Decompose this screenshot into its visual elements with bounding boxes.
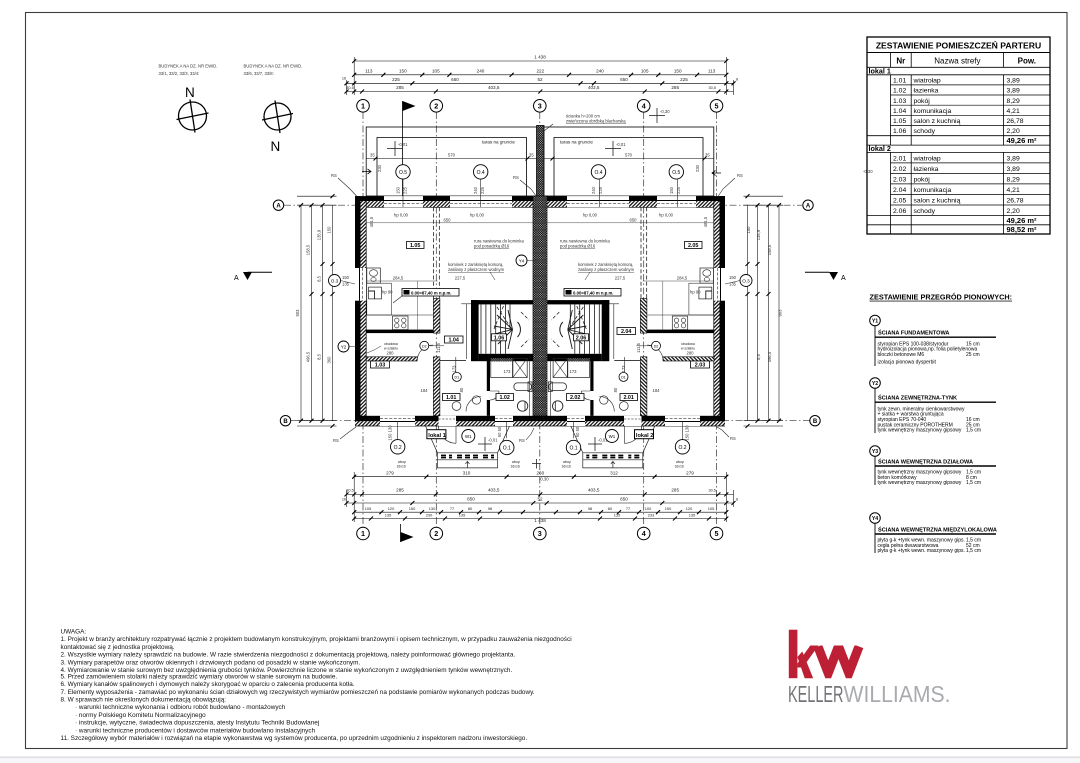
svg-text:8: 8 bbox=[736, 498, 738, 502]
svg-text:kontaktować się z jednostka pr: kontaktować się z jednostka projektową. bbox=[61, 644, 175, 651]
svg-text:279: 279 bbox=[386, 471, 394, 476]
svg-text:240: 240 bbox=[473, 186, 478, 194]
svg-text:2: 2 bbox=[434, 529, 438, 538]
svg-text:650: 650 bbox=[451, 77, 459, 82]
svg-text:tynk wewnętrzny maszynowy gips: tynk wewnętrzny maszynowy gipsowy bbox=[878, 480, 962, 486]
svg-text:173: 173 bbox=[504, 369, 512, 374]
svg-text:150: 150 bbox=[399, 68, 407, 73]
svg-text:158,5: 158,5 bbox=[306, 244, 311, 255]
svg-text:135: 135 bbox=[385, 513, 392, 518]
svg-text:135,9: 135,9 bbox=[756, 229, 761, 240]
svg-text:2. Wszystkie wymiary należy sp: 2. Wszystkie wymiary należy sprawdzić na… bbox=[61, 652, 516, 659]
svg-text:ŚCIANA ZEWNĘTRZNA-TYNK: ŚCIANA ZEWNĘTRZNA-TYNK bbox=[878, 395, 957, 402]
svg-text:pokój: pokój bbox=[914, 98, 931, 105]
svg-text:2.01: 2.01 bbox=[893, 155, 906, 162]
svg-text:225: 225 bbox=[403, 186, 408, 194]
svg-text:135,9: 135,9 bbox=[317, 229, 322, 240]
svg-text:obudowa: obudowa bbox=[681, 342, 695, 346]
svg-text:98,52 m²: 98,52 m² bbox=[1007, 225, 1038, 234]
svg-text:284,5: 284,5 bbox=[393, 276, 404, 281]
svg-text:1 438: 1 438 bbox=[534, 55, 546, 60]
svg-text:52: 52 bbox=[537, 497, 543, 502]
svg-text:111,5: 111,5 bbox=[636, 342, 641, 353]
svg-text:A: A bbox=[234, 275, 239, 282]
svg-text:pokój: pokój bbox=[914, 176, 931, 183]
svg-text:240: 240 bbox=[477, 68, 485, 73]
svg-text:8,5: 8,5 bbox=[317, 353, 322, 359]
svg-text:lokal 1: lokal 1 bbox=[869, 67, 891, 76]
svg-text:Y2: Y2 bbox=[341, 345, 347, 350]
svg-text:496,5: 496,5 bbox=[306, 351, 311, 362]
svg-text:4: 4 bbox=[642, 529, 646, 538]
svg-text:30,5: 30,5 bbox=[709, 489, 716, 493]
svg-text:135: 135 bbox=[459, 513, 466, 518]
svg-text:UWAGA:: UWAGA: bbox=[61, 629, 87, 636]
svg-text:80: 80 bbox=[613, 387, 618, 392]
svg-text:11. Szczegółowy wybór materiał: 11. Szczegółowy wybór materiałów i rozwi… bbox=[61, 735, 528, 742]
svg-text:RS: RS bbox=[331, 173, 337, 178]
svg-text:403,5: 403,5 bbox=[588, 85, 600, 90]
svg-text:1: 1 bbox=[361, 529, 365, 538]
svg-text:1,5 cm: 1,5 cm bbox=[966, 428, 981, 434]
svg-text:-0,01: -0,01 bbox=[616, 142, 626, 147]
svg-text:403,5: 403,5 bbox=[588, 488, 600, 493]
svg-text:260: 260 bbox=[536, 471, 544, 476]
svg-text:-0,01: -0,01 bbox=[398, 142, 408, 147]
svg-text:105: 105 bbox=[365, 506, 372, 511]
svg-text:225: 225 bbox=[676, 186, 681, 194]
svg-text:184: 184 bbox=[421, 388, 429, 393]
svg-text:173: 173 bbox=[452, 365, 457, 373]
svg-text:285: 285 bbox=[671, 488, 679, 493]
svg-text:50 50: 50 50 bbox=[575, 426, 580, 437]
svg-text:lokal 2: lokal 2 bbox=[636, 433, 653, 439]
svg-text:D2: D2 bbox=[422, 345, 427, 349]
svg-text:105: 105 bbox=[708, 506, 715, 511]
svg-text:8: 8 bbox=[736, 78, 738, 82]
svg-text:N: N bbox=[271, 139, 281, 154]
svg-text:285: 285 bbox=[396, 85, 404, 90]
svg-text:4: 4 bbox=[642, 101, 646, 110]
svg-text:1.03: 1.03 bbox=[375, 363, 386, 369]
svg-text:2.04: 2.04 bbox=[621, 329, 632, 335]
svg-text:150: 150 bbox=[409, 506, 416, 511]
svg-text:3,89: 3,89 bbox=[1007, 155, 1020, 162]
svg-text:113: 113 bbox=[365, 68, 373, 73]
svg-text:1.02: 1.02 bbox=[893, 88, 906, 95]
svg-text:· normy Polskiego Komitetu No: · normy Polskiego Komitetu Normalizacyjn… bbox=[75, 712, 206, 719]
svg-text:49,26 m²: 49,26 m² bbox=[1007, 136, 1038, 145]
svg-text:150: 150 bbox=[669, 186, 674, 194]
svg-text:hp 0,00: hp 0,00 bbox=[470, 213, 485, 218]
svg-text:16x16: 16x16 bbox=[562, 465, 571, 469]
svg-text:111,5: 111,5 bbox=[436, 342, 441, 353]
svg-text:· warunki techniczne wykonani: · warunki techniczne wykonania i odbioru… bbox=[75, 704, 286, 711]
svg-text:1.04: 1.04 bbox=[448, 338, 459, 344]
svg-text:1.01: 1.01 bbox=[446, 395, 457, 401]
svg-text:wiatrołap: wiatrołap bbox=[913, 78, 941, 85]
svg-text:1,5 cm: 1,5 cm bbox=[966, 480, 981, 486]
svg-text:O.5: O.5 bbox=[672, 170, 680, 176]
svg-text:hp 90: hp 90 bbox=[690, 290, 701, 295]
svg-text:-0,30: -0,30 bbox=[539, 477, 549, 482]
svg-text:35: 35 bbox=[529, 153, 534, 158]
svg-text:481,5: 481,5 bbox=[369, 216, 374, 227]
svg-text:150: 150 bbox=[674, 68, 682, 73]
svg-text:A: A bbox=[841, 275, 846, 282]
svg-text:158,5: 158,5 bbox=[767, 244, 772, 255]
svg-text:35: 35 bbox=[370, 153, 375, 158]
svg-text:schody: schody bbox=[914, 208, 936, 215]
svg-text:4,21: 4,21 bbox=[1007, 108, 1020, 115]
svg-text:16x16: 16x16 bbox=[511, 465, 520, 469]
svg-text:650: 650 bbox=[630, 217, 638, 222]
svg-text:16: 16 bbox=[342, 498, 346, 502]
svg-text:233: 233 bbox=[648, 513, 655, 518]
svg-text:0.00=87,40 m n.p.m.: 0.00=87,40 m n.p.m. bbox=[573, 290, 614, 295]
svg-text:16x16: 16x16 bbox=[675, 465, 684, 469]
svg-text:225: 225 bbox=[480, 186, 485, 194]
svg-text:B: B bbox=[283, 419, 288, 425]
svg-text:30,5: 30,5 bbox=[346, 489, 353, 493]
svg-text:33/6, 33/7, 33/8:: 33/6, 33/7, 33/8: bbox=[244, 71, 274, 76]
svg-text:hp 0,00: hp 0,00 bbox=[394, 213, 409, 218]
svg-text:B: B bbox=[813, 419, 818, 425]
svg-text:30,5: 30,5 bbox=[346, 86, 353, 90]
svg-text:903: 903 bbox=[295, 309, 300, 317]
svg-text:227,5: 227,5 bbox=[615, 276, 626, 281]
svg-text:1.05: 1.05 bbox=[410, 243, 421, 249]
svg-text:8,5: 8,5 bbox=[317, 275, 322, 281]
svg-text:ZESTAWIENIE POMIESZCZEŃ PARTER: ZESTAWIENIE POMIESZCZEŃ PARTERU bbox=[876, 41, 1041, 51]
svg-text:230: 230 bbox=[426, 513, 433, 518]
svg-text:227,5: 227,5 bbox=[455, 276, 466, 281]
svg-text:płyta g-k +tynk wewn. maszynow: płyta g-k +tynk wewn. maszynowy gips. bbox=[878, 548, 965, 554]
svg-text:2.04: 2.04 bbox=[893, 187, 906, 194]
svg-text:50 50: 50 50 bbox=[497, 426, 502, 437]
svg-text:310: 310 bbox=[463, 471, 471, 476]
svg-text:· instrukcje, wytyczne, świad: · instrukcje, wytyczne, świadectwa dopus… bbox=[75, 720, 319, 727]
svg-text:wkop: wkop bbox=[563, 460, 571, 464]
svg-text:650: 650 bbox=[620, 77, 628, 82]
svg-text:taras na gruncie: taras na gruncie bbox=[560, 140, 593, 145]
svg-text:izolacja pionowa dysperbit: izolacja pionowa dysperbit bbox=[878, 360, 937, 366]
svg-text:RS: RS bbox=[519, 438, 525, 443]
svg-text:120: 120 bbox=[388, 506, 395, 511]
svg-text:135: 135 bbox=[689, 513, 696, 518]
svg-text:O.3: O.3 bbox=[331, 279, 339, 284]
svg-text:240: 240 bbox=[596, 68, 604, 73]
svg-text:komunikacja: komunikacja bbox=[914, 187, 952, 194]
svg-text:2.06: 2.06 bbox=[576, 336, 587, 342]
svg-text:8,29: 8,29 bbox=[1007, 98, 1020, 105]
svg-text:WILLIAMS.: WILLIAMS. bbox=[844, 681, 951, 707]
svg-text:hp 0,00: hp 0,00 bbox=[583, 213, 598, 218]
svg-text:0.00=87,40 m n.p.m.: 0.00=87,40 m n.p.m. bbox=[411, 290, 452, 295]
svg-text:150 130: 150 130 bbox=[685, 425, 690, 441]
svg-text:570: 570 bbox=[448, 153, 456, 158]
svg-text:Y4: Y4 bbox=[872, 516, 878, 522]
svg-text:1.05: 1.05 bbox=[893, 118, 906, 125]
svg-text:komunikacja: komunikacja bbox=[914, 108, 952, 115]
svg-text:173: 173 bbox=[570, 369, 578, 374]
svg-text:6. Wymiary kanałów spalinowych: 6. Wymiary kanałów spalinowych i dymowyc… bbox=[61, 681, 355, 688]
svg-text:RS: RS bbox=[513, 175, 519, 180]
svg-text:salon z kuchnią: salon z kuchnią bbox=[914, 118, 961, 125]
svg-text:52: 52 bbox=[537, 77, 543, 82]
svg-text:225: 225 bbox=[598, 186, 603, 194]
svg-text:3,89: 3,89 bbox=[1007, 166, 1020, 173]
svg-text:26,78: 26,78 bbox=[1007, 198, 1024, 205]
svg-text:285: 285 bbox=[671, 85, 679, 90]
svg-text:280: 280 bbox=[687, 351, 695, 356]
svg-text:4,21: 4,21 bbox=[1007, 187, 1020, 194]
svg-text:222: 222 bbox=[536, 68, 544, 73]
svg-text:-0,01: -0,01 bbox=[488, 438, 498, 443]
svg-text:obudowa: obudowa bbox=[384, 342, 398, 346]
svg-text:35: 35 bbox=[705, 153, 710, 158]
svg-text:ŚCIANA WEWNĘTRZNA MIĘDZYLOKALO: ŚCIANA WEWNĘTRZNA MIĘDZYLOKALOWA bbox=[878, 527, 997, 534]
svg-text:230: 230 bbox=[695, 164, 700, 172]
svg-text:2,20: 2,20 bbox=[1007, 208, 1020, 215]
svg-text:1 438: 1 438 bbox=[534, 518, 546, 523]
svg-text:240: 240 bbox=[591, 186, 596, 194]
svg-text:taras na gruncie: taras na gruncie bbox=[482, 140, 515, 145]
svg-text:3,89: 3,89 bbox=[1007, 88, 1020, 95]
svg-text:schody: schody bbox=[914, 128, 936, 135]
svg-text:3. Wymiary parapetów oraz otwo: 3. Wymiary parapetów oraz otworów okienn… bbox=[61, 659, 361, 666]
svg-text:30,5: 30,5 bbox=[709, 86, 716, 90]
svg-text:8,29: 8,29 bbox=[1007, 176, 1020, 183]
svg-text:285: 285 bbox=[396, 488, 404, 493]
svg-text:150: 150 bbox=[327, 226, 332, 234]
svg-text:150: 150 bbox=[665, 506, 672, 511]
svg-text:5. Przed zamówieniem stolarki: 5. Przed zamówieniem stolarki należy spr… bbox=[61, 673, 338, 680]
svg-text:lokal 1: lokal 1 bbox=[428, 433, 445, 439]
svg-text:650: 650 bbox=[620, 497, 628, 502]
svg-text:2.05: 2.05 bbox=[688, 243, 699, 249]
svg-text:33/1, 33/2, 33/3, 33/4:: 33/1, 33/2, 33/3, 33/4: bbox=[159, 71, 200, 76]
svg-text:D2: D2 bbox=[654, 345, 659, 349]
svg-text:Y2: Y2 bbox=[872, 381, 878, 387]
svg-text:1. Projekt w branży architektu: 1. Projekt w branży architektury rozpatr… bbox=[61, 636, 572, 643]
svg-text:2.02: 2.02 bbox=[893, 166, 906, 173]
svg-text:2,20: 2,20 bbox=[1007, 128, 1020, 135]
svg-text:-0,30: -0,30 bbox=[863, 169, 873, 174]
svg-text:225: 225 bbox=[680, 77, 688, 82]
svg-text:2.02: 2.02 bbox=[570, 395, 581, 401]
svg-text:184: 184 bbox=[653, 388, 661, 393]
svg-text:RS: RS bbox=[333, 438, 339, 443]
svg-text:tynk wewnętrzny maszynowy gips: tynk wewnętrzny maszynowy gipsowy bbox=[878, 428, 962, 434]
svg-text:Nazwa strefy: Nazwa strefy bbox=[934, 57, 980, 66]
svg-text:650: 650 bbox=[444, 217, 452, 222]
svg-text:16x16: 16x16 bbox=[397, 465, 406, 469]
svg-text:1.06: 1.06 bbox=[494, 336, 505, 342]
svg-text:16: 16 bbox=[342, 77, 346, 81]
svg-text:403,5: 403,5 bbox=[488, 85, 500, 90]
svg-text:312: 312 bbox=[610, 471, 618, 476]
svg-text:481,5: 481,5 bbox=[703, 216, 708, 227]
svg-text:403,5: 403,5 bbox=[488, 488, 500, 493]
svg-text:850: 850 bbox=[467, 497, 475, 502]
svg-text:hp 0,00: hp 0,00 bbox=[659, 213, 674, 218]
svg-text:280: 280 bbox=[387, 351, 395, 356]
svg-text:W1: W1 bbox=[609, 434, 616, 439]
svg-text:570: 570 bbox=[625, 153, 633, 158]
svg-text:1.03: 1.03 bbox=[893, 98, 906, 105]
svg-text:1.06: 1.06 bbox=[893, 128, 906, 135]
svg-text:105: 105 bbox=[432, 68, 440, 73]
svg-text:98: 98 bbox=[588, 506, 592, 511]
svg-text:230: 230 bbox=[377, 164, 382, 172]
svg-text:1.02: 1.02 bbox=[499, 395, 510, 401]
svg-text:98: 98 bbox=[488, 506, 492, 511]
svg-text:łazienka: łazienka bbox=[914, 166, 939, 173]
svg-text:26,78: 26,78 bbox=[1007, 118, 1024, 125]
svg-text:903: 903 bbox=[778, 309, 783, 317]
svg-text:150: 150 bbox=[396, 186, 401, 194]
svg-text:wiatrołap: wiatrołap bbox=[913, 155, 941, 162]
svg-text:pod posadzką Ø16: pod posadzką Ø16 bbox=[560, 244, 596, 249]
svg-text:RS: RS bbox=[730, 436, 736, 441]
svg-text:RS: RS bbox=[737, 173, 743, 178]
svg-text:1.01: 1.01 bbox=[893, 78, 906, 85]
svg-text:D1: D1 bbox=[621, 376, 626, 380]
svg-text:1,5 cm: 1,5 cm bbox=[966, 548, 981, 554]
svg-text:hp 90: hp 90 bbox=[382, 290, 393, 295]
svg-text:360: 360 bbox=[327, 356, 332, 364]
svg-text:KELLER: KELLER bbox=[788, 681, 844, 707]
svg-text:2.01: 2.01 bbox=[623, 395, 634, 401]
svg-text:· warunki techniczne producen: · warunki techniczne producentów i dosta… bbox=[75, 727, 316, 734]
svg-text:ŚCIANA WEWNĘTRZNA DZIAŁOWA: ŚCIANA WEWNĘTRZNA DZIAŁOWA bbox=[878, 459, 973, 466]
svg-text:A: A bbox=[276, 204, 281, 210]
svg-text:salon z kuchnią: salon z kuchnią bbox=[914, 198, 961, 205]
svg-text:zwieńczona obróbką blacharską: zwieńczona obróbką blacharską bbox=[566, 119, 626, 124]
svg-text:3: 3 bbox=[538, 101, 542, 110]
svg-text:7. Elementy wyposażenia - zama: 7. Elementy wyposażenia - zamawiać po wy… bbox=[61, 689, 535, 696]
svg-text:BUDYNEK A NA DZ. NR EWID.: BUDYNEK A NA DZ. NR EWID. bbox=[244, 64, 303, 69]
svg-text:BUDYNEK A NA DZ. NR EWID.: BUDYNEK A NA DZ. NR EWID. bbox=[159, 64, 218, 69]
svg-text:O.3: O.3 bbox=[742, 279, 750, 284]
svg-text:Y1: Y1 bbox=[872, 319, 878, 325]
svg-text:3: 3 bbox=[538, 529, 542, 538]
svg-text:O.2: O.2 bbox=[394, 445, 402, 451]
svg-text:O.5: O.5 bbox=[399, 170, 407, 176]
svg-text:Y3: Y3 bbox=[872, 449, 878, 455]
svg-text:Y4: Y4 bbox=[519, 259, 525, 264]
svg-text:25 cm: 25 cm bbox=[966, 352, 980, 358]
svg-text:135: 135 bbox=[614, 513, 621, 518]
svg-text:150: 150 bbox=[729, 275, 737, 280]
svg-text:O.1: O.1 bbox=[569, 446, 577, 452]
svg-text:3,89: 3,89 bbox=[1007, 78, 1020, 85]
svg-text:120: 120 bbox=[686, 506, 693, 511]
svg-text:wkop: wkop bbox=[398, 460, 406, 464]
svg-text:pod posadzką Ø16: pod posadzką Ø16 bbox=[474, 244, 510, 249]
svg-text:lokal 2: lokal 2 bbox=[869, 144, 891, 153]
svg-text:2.03: 2.03 bbox=[893, 176, 906, 183]
svg-text:105: 105 bbox=[641, 68, 649, 73]
svg-text:A: A bbox=[806, 204, 811, 210]
svg-text:bloczki betonowe M6: bloczki betonowe M6 bbox=[878, 352, 925, 358]
svg-text:2: 2 bbox=[434, 101, 438, 110]
svg-text:173: 173 bbox=[621, 365, 626, 373]
svg-text:225: 225 bbox=[392, 77, 400, 82]
svg-text:łazienka: łazienka bbox=[914, 88, 939, 95]
svg-text:150 130: 150 130 bbox=[388, 425, 393, 441]
svg-text:2.05: 2.05 bbox=[893, 198, 906, 205]
svg-text:ZESTAWIENIE PRZEGRÓD PIONOWYCH: ZESTAWIENIE PRZEGRÓD PIONOWYCH: bbox=[870, 293, 1013, 302]
svg-text:zasilany z płaszczem wodnym: zasilany z płaszczem wodnym bbox=[578, 267, 635, 272]
svg-text:77: 77 bbox=[450, 506, 454, 511]
svg-text:zasilany z płaszczem wodnym: zasilany z płaszczem wodnym bbox=[448, 267, 505, 272]
svg-text:O.4: O.4 bbox=[594, 170, 602, 176]
svg-text:Nr: Nr bbox=[896, 57, 905, 66]
svg-text:w szlablu: w szlablu bbox=[681, 347, 695, 351]
svg-text:284,5: 284,5 bbox=[677, 276, 688, 281]
svg-text:8. W sprawach nie określonych: 8. W sprawach nie określonych dokumentac… bbox=[61, 697, 227, 704]
svg-text:2.06: 2.06 bbox=[893, 208, 906, 215]
svg-text:Pow.: Pow. bbox=[1018, 57, 1036, 66]
svg-text:N: N bbox=[185, 85, 195, 100]
svg-text:D1: D1 bbox=[454, 376, 459, 380]
svg-text:150: 150 bbox=[746, 226, 751, 234]
svg-text:1.04: 1.04 bbox=[893, 108, 906, 115]
svg-text:150: 150 bbox=[342, 275, 350, 280]
svg-text:130: 130 bbox=[429, 506, 436, 511]
svg-text:1: 1 bbox=[361, 101, 365, 110]
svg-text:5: 5 bbox=[715, 529, 719, 538]
svg-text:-0,30: -0,30 bbox=[660, 109, 670, 114]
svg-text:100: 100 bbox=[645, 506, 652, 511]
svg-text:113: 113 bbox=[708, 68, 716, 73]
svg-text:496,5: 496,5 bbox=[767, 351, 772, 362]
svg-text:77: 77 bbox=[626, 506, 630, 511]
svg-text:wkop: wkop bbox=[512, 460, 520, 464]
svg-text:wkop: wkop bbox=[676, 460, 684, 464]
svg-text:5: 5 bbox=[715, 101, 719, 110]
svg-text:ŚCIANA FUNDAMENTOWA: ŚCIANA FUNDAMENTOWA bbox=[878, 330, 949, 337]
svg-text:2.03: 2.03 bbox=[695, 363, 706, 369]
svg-text:8,5: 8,5 bbox=[756, 353, 761, 359]
svg-text:O.2: O.2 bbox=[678, 445, 686, 451]
svg-text:W1: W1 bbox=[465, 434, 472, 439]
svg-text:w szlablu: w szlablu bbox=[384, 347, 398, 351]
svg-text:80: 80 bbox=[459, 387, 464, 392]
svg-text:O.4: O.4 bbox=[477, 170, 485, 176]
svg-text:O.1: O.1 bbox=[503, 446, 511, 452]
svg-text:279: 279 bbox=[686, 471, 694, 476]
svg-text:49,26 m²: 49,26 m² bbox=[1007, 216, 1038, 225]
